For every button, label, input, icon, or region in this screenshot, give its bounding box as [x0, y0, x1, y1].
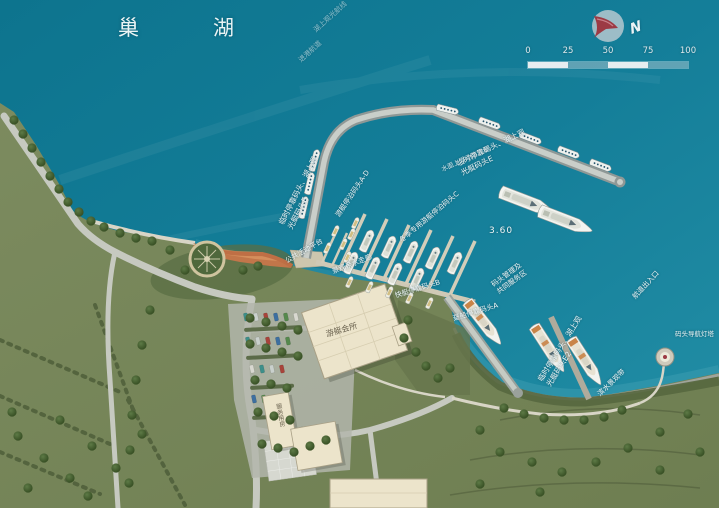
depth-marker: 3.60 [489, 226, 513, 236]
south-building [330, 479, 427, 508]
scale-bar-segments [528, 62, 688, 68]
lighthouse [656, 348, 674, 366]
scale-tick: 25 [563, 46, 574, 56]
scale-tick: 0 [525, 46, 530, 56]
scale-bar: 0 25 50 75 100 [528, 46, 696, 74]
map-artwork [0, 0, 719, 508]
label-lighthouse: 码头导航灯塔 [675, 330, 714, 338]
service-building-2 [291, 421, 346, 474]
marina-site-plan: 巢湖 N 0 25 50 75 100 3.60 湖上观光航线 进港航道 临时停… [0, 0, 719, 508]
lake-name: 巢湖 [118, 12, 308, 42]
scale-tick: 75 [643, 46, 654, 56]
scale-tick: 50 [603, 46, 614, 56]
circular-plaza [190, 242, 224, 276]
scale-tick: 100 [680, 46, 696, 56]
